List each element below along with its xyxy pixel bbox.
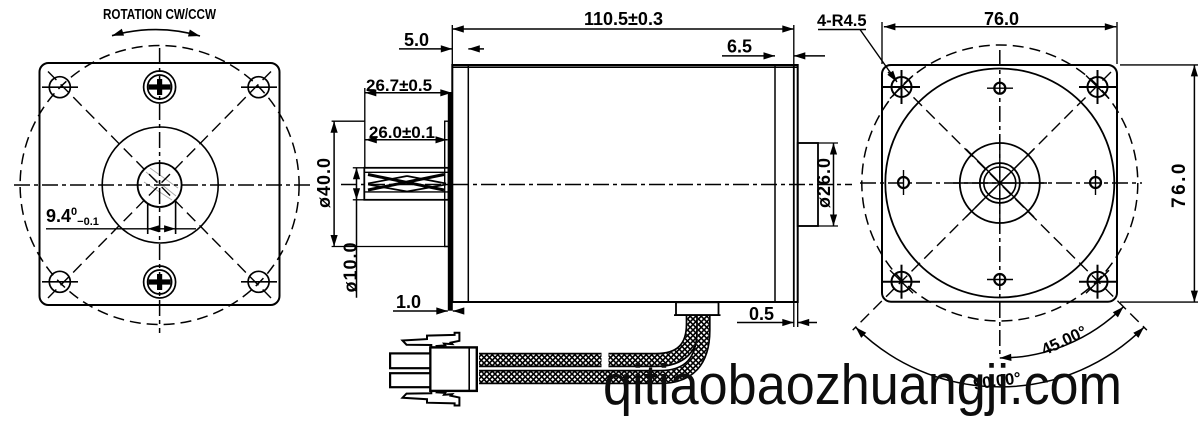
svg-text:ø40.0: ø40.0 (314, 157, 334, 208)
svg-text:4-R4.5: 4-R4.5 (817, 12, 867, 30)
svg-text:76.0: 76.0 (984, 9, 1019, 29)
svg-text:5.0: 5.0 (404, 30, 429, 50)
svg-text:ø26.0: ø26.0 (814, 157, 834, 208)
svg-text:0.5: 0.5 (749, 304, 774, 324)
svg-text:110.5±0.3: 110.5±0.3 (584, 9, 663, 29)
svg-text:1.0: 1.0 (396, 292, 421, 312)
svg-text:ø10.0: ø10.0 (341, 241, 361, 292)
svg-text:76.0: 76.0 (1169, 161, 1190, 208)
svg-text:6.5: 6.5 (727, 37, 752, 57)
svg-text:qitiaobaozhuangji.com: qitiaobaozhuangji.com (603, 353, 1122, 417)
svg-text:ROTATION CW/CCW: ROTATION CW/CCW (103, 7, 216, 23)
